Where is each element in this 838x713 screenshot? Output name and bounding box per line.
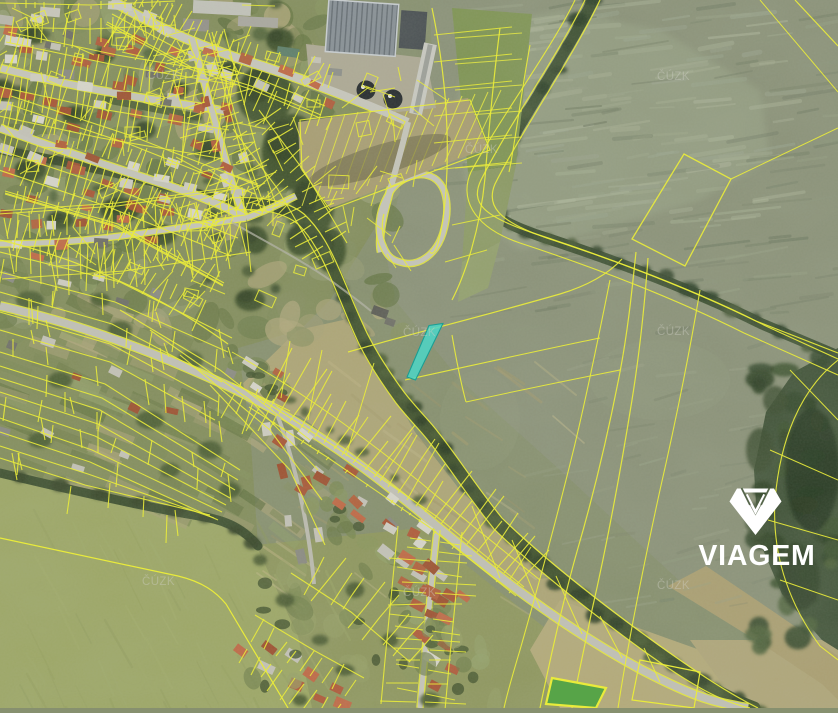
svg-text:ČÚZK: ČÚZK [657, 70, 690, 83]
svg-text:ČÚZK: ČÚZK [403, 586, 436, 599]
svg-text:VIAGEM: VIAGEM [698, 540, 815, 572]
svg-text:ČÚZK: ČÚZK [657, 579, 690, 592]
svg-text:ČÚZK: ČÚZK [657, 325, 690, 338]
svg-text:ČÚZK: ČÚZK [147, 69, 180, 82]
svg-text:ČÚZK: ČÚZK [142, 575, 175, 588]
svg-text:ČÚZK: ČÚZK [403, 326, 436, 339]
svg-text:ČÚZK: ČÚZK [465, 143, 498, 156]
